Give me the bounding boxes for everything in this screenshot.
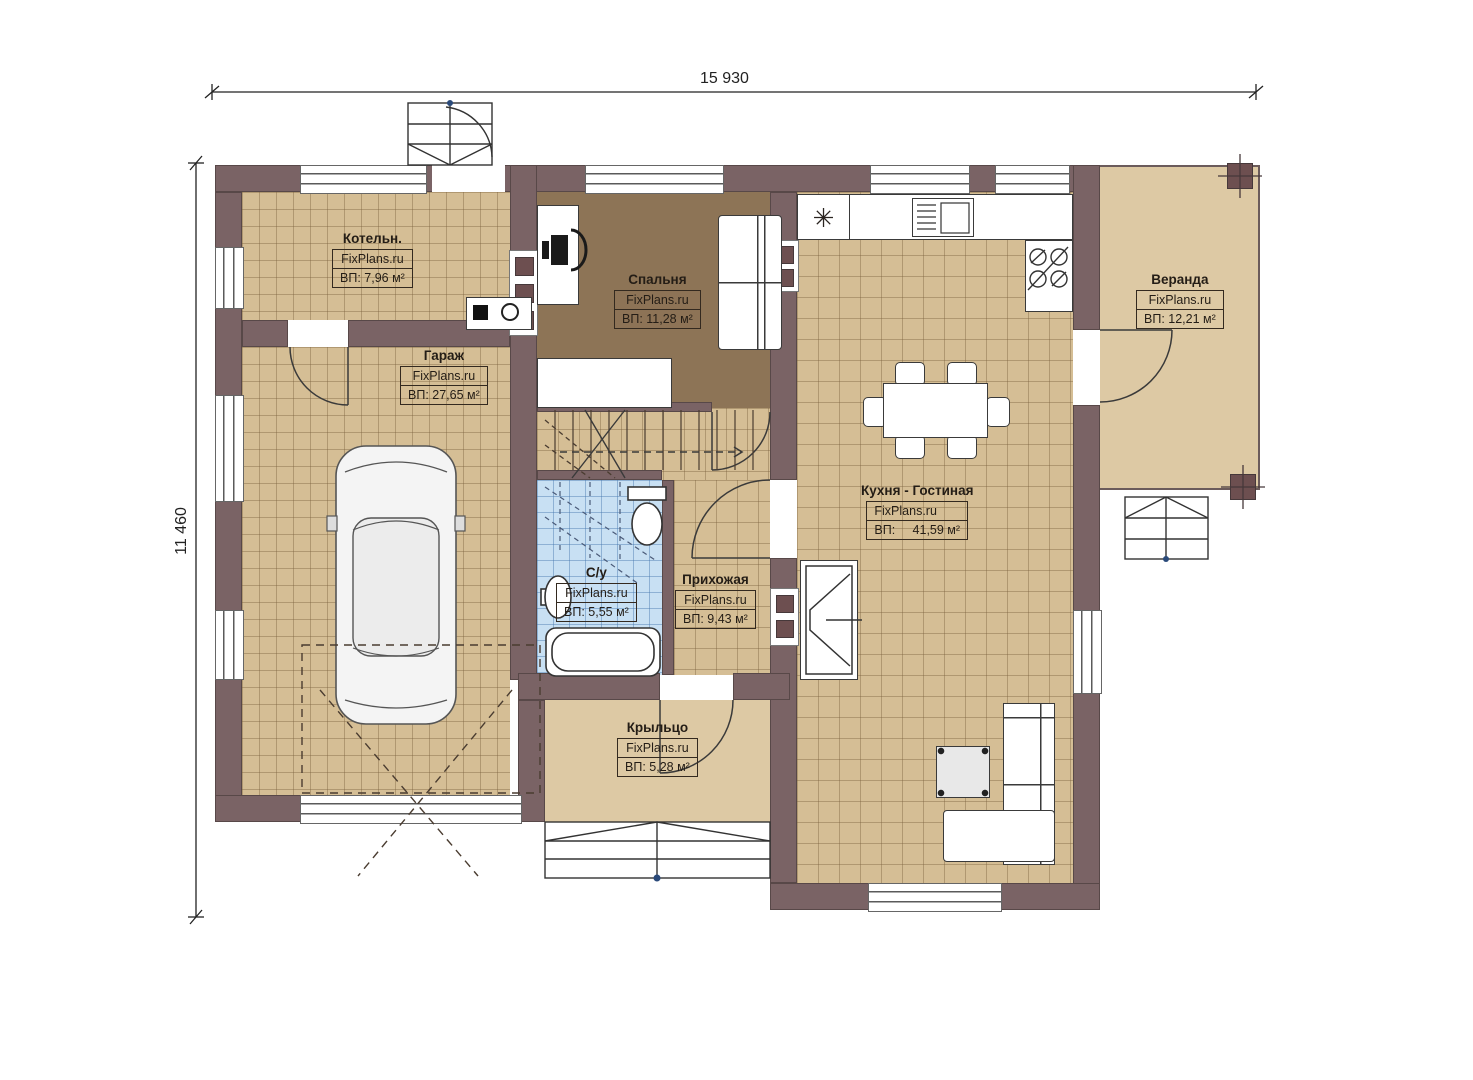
room-label-bathroom: С/у FixPlans.ru ВП: 5,55 м² — [556, 565, 637, 622]
bathtub — [546, 628, 660, 676]
brand-watermark: FixPlans.ru — [618, 739, 697, 758]
brand-watermark: FixPlans.ru — [676, 591, 755, 610]
veranda-door — [1100, 330, 1172, 402]
room-label-veranda: Веранда FixPlans.ru ВП: 12,21 м² — [1136, 272, 1224, 329]
porch-steps — [545, 822, 770, 882]
room-label-hallway: Прихожая FixPlans.ru ВП: 9,43 м² — [675, 572, 756, 629]
staircase — [545, 410, 753, 478]
boiler-garage-door — [290, 347, 348, 405]
car — [327, 446, 465, 724]
toilet — [628, 487, 666, 545]
fireplace-funnel — [806, 566, 862, 674]
desk-chair — [542, 230, 586, 270]
stove-details — [917, 203, 969, 233]
floor-plan: ✳ — [0, 0, 1473, 1080]
brand-watermark: FixPlans.ru — [1137, 291, 1223, 310]
north-entry-steps — [408, 100, 492, 165]
room-label-porch: Крыльцо FixPlans.ru ВП: 5,28 м² — [617, 720, 698, 777]
room-label-boiler: Котельн. FixPlans.ru ВП: 7,96 м² — [332, 231, 413, 288]
brand-watermark: FixPlans.ru — [557, 584, 636, 603]
veranda-steps — [1125, 497, 1208, 562]
room-label-bedroom: Спальня FixPlans.ru ВП: 11,28 м² — [614, 272, 701, 329]
dimension-height: 11 460 — [173, 507, 191, 555]
brand-watermark: FixPlans.ru — [615, 291, 700, 310]
brand-watermark: FixPlans.ru — [867, 502, 967, 521]
room-label-garage: Гараж FixPlans.ru ВП: 27,65 м² — [400, 348, 488, 405]
brand-watermark: FixPlans.ru — [333, 250, 412, 269]
room-label-kitchen-living: Кухня - Гостиная FixPlans.ru ВП: 41,59 м… — [861, 483, 973, 540]
hob-burners-icon — [1028, 247, 1068, 290]
dimension-width: 15 930 — [700, 70, 749, 88]
detail-layer — [0, 0, 1473, 1080]
bedroom-door — [712, 412, 770, 470]
post-axis-ticks — [1218, 154, 1265, 509]
brand-watermark: FixPlans.ru — [401, 367, 487, 386]
hall-kitchen-door — [692, 480, 770, 558]
